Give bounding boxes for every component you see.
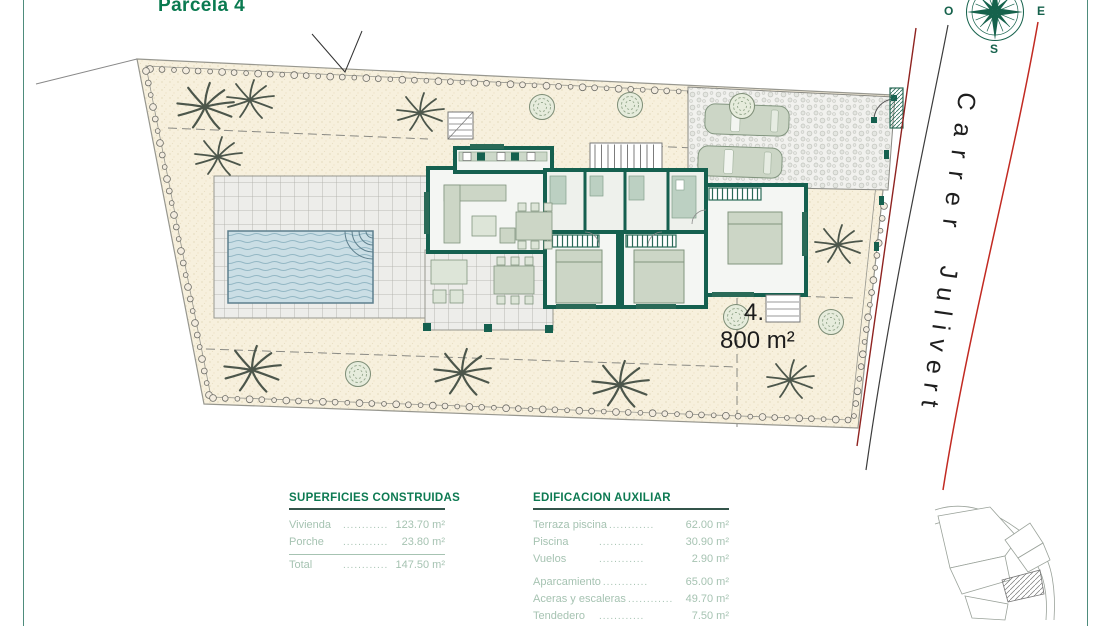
sheet-border-left — [23, 0, 24, 626]
table-row: Vuelos............2.90 m² — [533, 551, 729, 568]
round-bush-icon — [618, 93, 643, 118]
table-separator — [289, 554, 445, 555]
compass-west-label: O — [944, 4, 953, 18]
compass-south-label: S — [990, 42, 998, 56]
compass-rose-icon — [967, 0, 1024, 41]
table-row: Terraza piscina............62.00 m² — [533, 517, 729, 534]
table-total-row: Total............147.50 m² — [289, 557, 445, 574]
superficies-construidas-table: SUPERFICIES CONSTRUIDAS Vivienda........… — [289, 492, 445, 574]
swimming-pool — [228, 231, 373, 303]
round-bush-icon — [819, 310, 844, 335]
compass-east-label: E — [1037, 4, 1045, 18]
site-plan-sheet: Parcela 4 O E S Carrer Julivert 4. 800 m… — [0, 0, 1110, 626]
utility-box — [890, 88, 903, 128]
round-bush-icon — [346, 362, 371, 387]
street-road — [857, 22, 1038, 490]
page-title: Parcela 4 — [158, 0, 245, 17]
table-row: Porche............23.80 m² — [289, 534, 445, 551]
table-title: EDIFICACION AUXILIAR — [533, 492, 729, 510]
table-title: SUPERFICIES CONSTRUIDAS — [289, 492, 445, 510]
sheet-border-right — [1087, 0, 1088, 626]
edificacion-auxiliar-table: EDIFICACION AUXILIAR Terraza piscina....… — [533, 492, 729, 626]
table-row: Piscina............30.90 m² — [533, 534, 729, 551]
table-row: Aceras y escaleras............49.70 m² — [533, 591, 729, 608]
parcel-area-label: 800 m² — [720, 327, 795, 355]
table-row: Vivienda............123.70 m² — [289, 517, 445, 534]
table-row: Aparcamiento............65.00 m² — [533, 574, 729, 591]
inset-location-map — [935, 506, 1054, 620]
car-icon — [698, 146, 783, 179]
table-row: Tendedero............7.50 m² — [533, 608, 729, 625]
round-bush-icon — [530, 95, 555, 120]
parcel-number-label: 4. — [744, 299, 764, 327]
round-bush-icon — [730, 94, 755, 119]
